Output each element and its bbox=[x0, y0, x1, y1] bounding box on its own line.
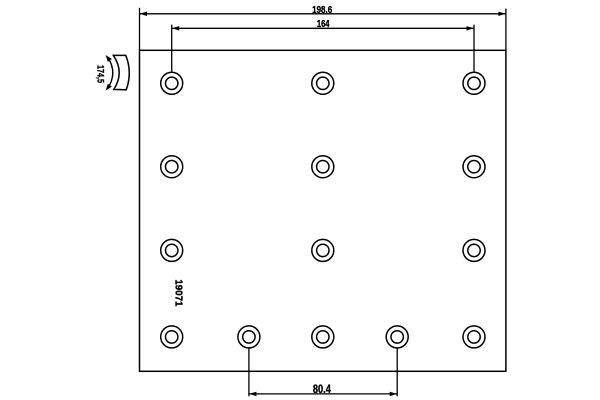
svg-text:164: 164 bbox=[317, 19, 330, 30]
svg-text:198.6: 198.6 bbox=[312, 4, 332, 16]
svg-text:80.4: 80.4 bbox=[313, 382, 331, 396]
svg-text:19071: 19071 bbox=[172, 279, 184, 306]
svg-text:174,5: 174,5 bbox=[95, 65, 105, 83]
